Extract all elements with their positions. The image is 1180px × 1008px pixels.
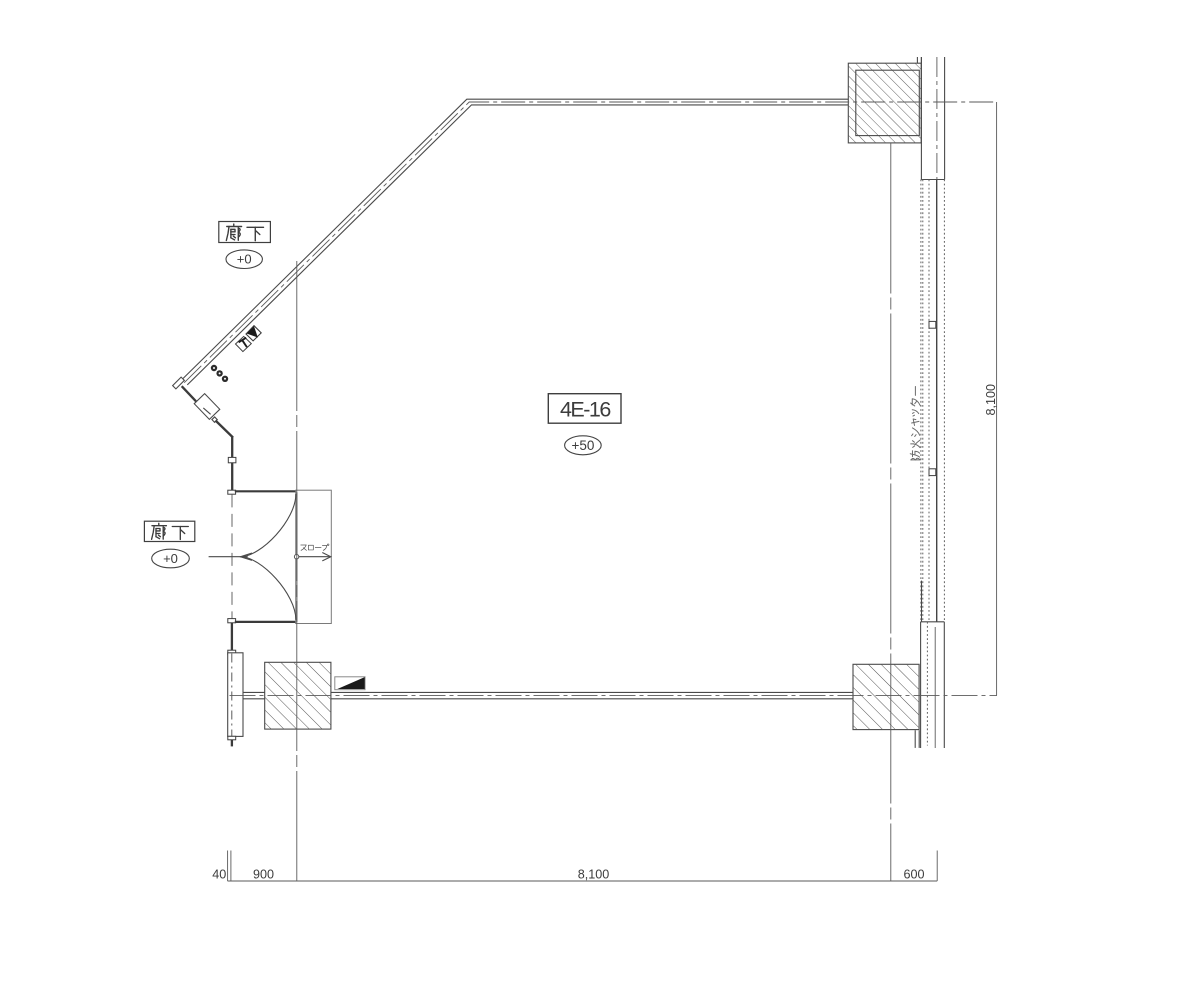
svg-text:900: 900 bbox=[253, 867, 274, 881]
svg-text:+0: +0 bbox=[163, 551, 178, 566]
svg-text:40: 40 bbox=[212, 867, 226, 881]
svg-text:8,100: 8,100 bbox=[578, 867, 610, 881]
svg-text:4E-16: 4E-16 bbox=[560, 398, 611, 422]
svg-text:8,100: 8,100 bbox=[984, 384, 998, 416]
svg-text:+0: +0 bbox=[237, 252, 252, 267]
svg-text:+50: +50 bbox=[571, 438, 594, 453]
svg-text:600: 600 bbox=[903, 867, 924, 881]
